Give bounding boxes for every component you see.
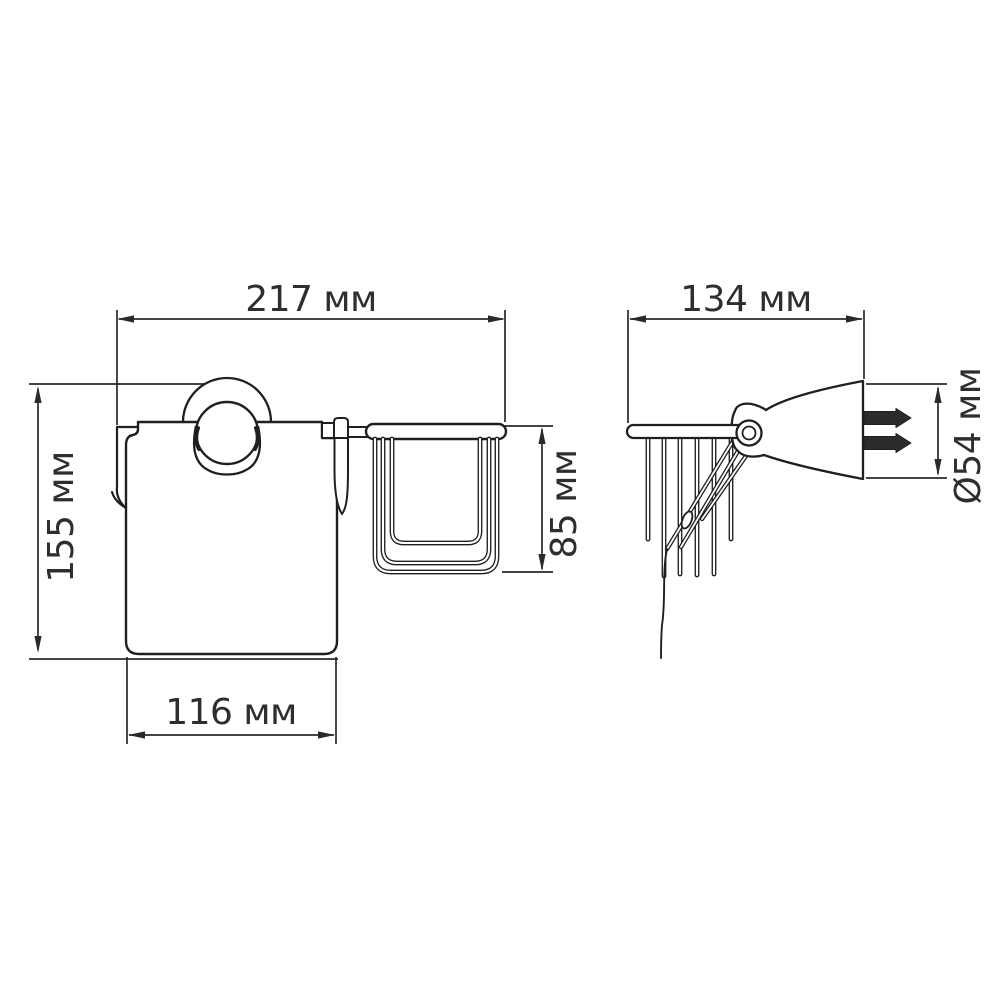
arrowhead — [488, 315, 505, 322]
arrowhead — [117, 315, 134, 322]
dimension-label-flange-diameter: Ø54 мм — [948, 368, 989, 505]
dimension-label-front-height: 155 мм — [41, 451, 82, 582]
dimension-label-front-width: 217 мм — [245, 279, 376, 320]
mounting-screw-top — [864, 409, 911, 428]
hook-end-cap — [335, 438, 349, 514]
arrowhead — [318, 731, 335, 738]
dimension-label-side-width: 134 мм — [680, 279, 811, 320]
technical-drawing-page: 217 мм 155 мм 116 мм 85 мм — [0, 0, 1000, 1000]
toilet-paper-holder-drawing: 217 мм 155 мм 116 мм 85 мм — [0, 0, 1000, 1000]
hanger-post — [334, 418, 348, 438]
arrowhead — [846, 315, 863, 322]
arrowhead — [934, 386, 941, 403]
dimension-cover-width: 116 мм — [127, 657, 336, 744]
basket-wires-side — [648, 438, 731, 576]
front-view: 217 мм 155 мм 116 мм 85 мм — [29, 279, 585, 744]
dimension-basket-height: 85 мм — [502, 426, 585, 572]
dimension-front-width: 217 мм — [117, 279, 505, 425]
side-view: 134 мм Ø54 мм — [627, 279, 989, 658]
basket-wires-front — [375, 439, 497, 572]
clamp-bracket — [322, 423, 334, 438]
arrowhead — [128, 731, 145, 738]
mounting-screw-bottom — [864, 434, 911, 453]
arrowhead — [538, 427, 545, 444]
basket-wires-diagonal — [661, 441, 748, 658]
roll-knob — [196, 402, 258, 464]
arrowhead — [629, 315, 646, 322]
dimension-label-cover-width: 116 мм — [165, 692, 296, 733]
arrowhead — [34, 636, 41, 653]
basket-rim — [366, 424, 506, 439]
arrowhead — [934, 459, 941, 476]
dimension-label-basket-height: 85 мм — [544, 449, 585, 558]
hinge-hub-inner — [743, 427, 756, 440]
arrowhead — [34, 386, 41, 403]
